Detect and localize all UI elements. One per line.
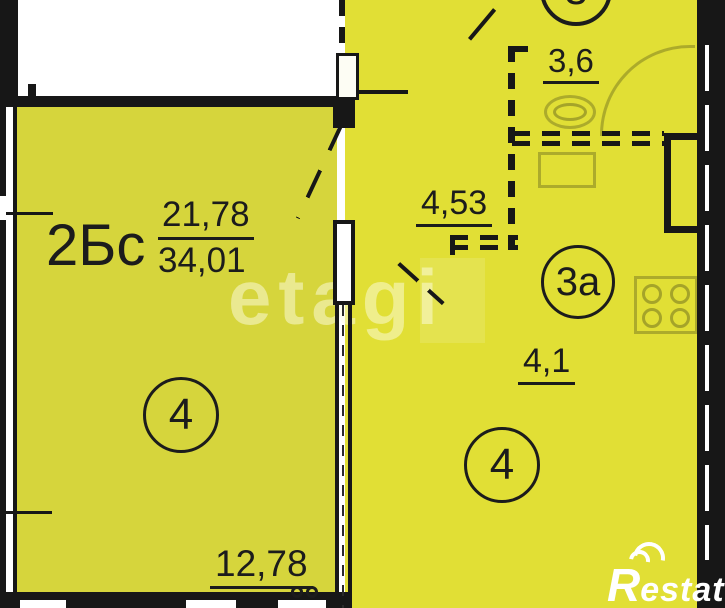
wall-right-white-dash: [705, 45, 709, 560]
room-circle-right: 4: [464, 427, 540, 503]
wall-tick-right-of-window: [358, 90, 408, 94]
bath-partition-horizontal-1: [512, 131, 664, 136]
partition-line-right: [348, 305, 352, 608]
floorplan-canvas: etagi 3: [0, 0, 725, 608]
total-area-value: 34,01: [158, 240, 246, 280]
brand-logo: Restate: [607, 558, 725, 608]
room-number-left: 4: [169, 390, 193, 440]
counter-fixture: [538, 152, 596, 188]
brand-rest: estate: [640, 571, 725, 608]
room-area-left: [17, 107, 337, 592]
room-circle-bath: 3а: [541, 245, 615, 319]
partition-centerline: [342, 305, 344, 608]
niche-bottom-bar: [664, 226, 697, 233]
dim-hall-width: 4,53: [416, 184, 492, 227]
wall-tick-top: [28, 84, 36, 98]
dim-room-width: 12,78: [210, 543, 313, 589]
apartment-type-label: 2Бс: [46, 212, 145, 279]
mid-wall-window-upper: [336, 53, 359, 100]
mid-wall-window-lower: [333, 220, 355, 305]
room-number-top: 3: [564, 0, 587, 14]
wall-left-outer: [0, 96, 6, 608]
apartment-area-fraction: 21,78 34,01: [158, 197, 254, 280]
bath-partition-horizontal-2: [512, 141, 664, 146]
hall-partition-dash-1: [450, 235, 518, 240]
door-leaf-highlight: [420, 258, 485, 343]
window-opening-1: [20, 600, 66, 608]
bath-partition-vertical: [508, 46, 515, 250]
wall-left-inner-window-line: [13, 107, 17, 592]
dim-bath-width: 3,6: [543, 42, 599, 84]
room-circle-left: 4: [143, 377, 219, 453]
wall-top-horizontal: [0, 96, 340, 107]
room-number-right: 4: [490, 440, 514, 490]
hall-partition-stub: [450, 235, 455, 255]
niche-left-bar: [664, 133, 671, 233]
window-break-left: [0, 196, 6, 220]
partition-line-left: [335, 305, 339, 608]
wall-right-band: [697, 0, 725, 608]
wall-top-left-vertical: [0, 0, 18, 96]
radiator-dot-2: [306, 586, 318, 598]
stove-fixture: [634, 276, 698, 334]
niche-top-bar: [664, 133, 697, 140]
sink-fixture: [544, 95, 596, 129]
window-tick-lower: [0, 511, 52, 514]
hall-partition-dash-2: [450, 245, 518, 250]
room-number-bath: 3а: [556, 260, 601, 305]
window-opening-2: [186, 600, 236, 608]
radiator-dot-1: [291, 586, 303, 598]
living-area-value: 21,78: [158, 197, 254, 240]
dashed-line-top: [339, 0, 345, 50]
dim-wc-width: 4,1: [518, 342, 575, 385]
window-opening-3: [278, 600, 326, 608]
